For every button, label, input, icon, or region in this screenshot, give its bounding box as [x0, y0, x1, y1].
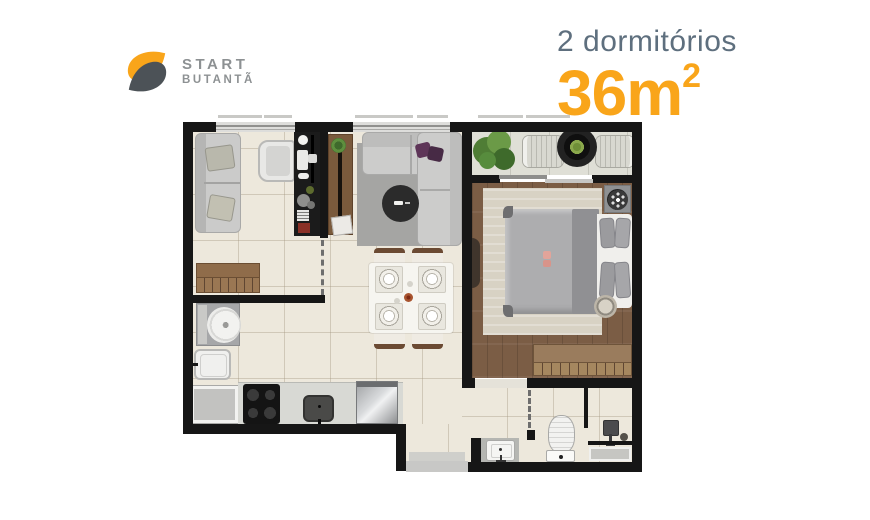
bedside-stool [594, 295, 617, 318]
laundry-cabinet [191, 386, 238, 423]
wall-right [632, 132, 642, 472]
sill-4 [417, 115, 448, 118]
double-bed [505, 209, 599, 314]
washing-machine [196, 303, 240, 346]
wall-living-bedroom [462, 132, 472, 388]
wall-bath-stub [471, 438, 481, 462]
table-glass-2 [394, 298, 400, 304]
bedroom-dresser-rack [533, 344, 632, 376]
wall-top-2 [295, 122, 353, 132]
wall-kitchen-bottom [183, 424, 403, 434]
wall-bottom-right [468, 462, 642, 472]
wall-top-1 [183, 122, 216, 132]
sill-2 [264, 115, 292, 118]
wall-top-3 [450, 122, 642, 132]
sliding-door-panel-1 [499, 175, 547, 179]
table-centerpiece [404, 293, 413, 302]
wall-balcony-left-seg [472, 175, 500, 183]
table-glass-1 [407, 281, 413, 287]
bedroom-side-table [604, 185, 631, 213]
office-sofa [195, 133, 241, 233]
kitchen-sink [303, 395, 334, 422]
window-office [216, 122, 295, 132]
bathroom-vanity [481, 438, 519, 462]
laundry-tub [194, 349, 231, 380]
place-setting-1 [375, 266, 403, 293]
office-lounge-chair [258, 140, 295, 182]
floor-plan [0, 0, 870, 520]
refrigerator [356, 381, 398, 424]
wall-entry-jamb [396, 424, 406, 471]
window-living [353, 122, 450, 132]
place-setting-3 [375, 303, 403, 330]
stove-cooktop [243, 384, 280, 424]
bedroom-door-leaf [472, 238, 480, 288]
office-wardrobe-rack [196, 263, 260, 293]
bedroom-door-threshold [475, 379, 527, 388]
shower-curb [588, 441, 632, 445]
wall-bath-door-stub [527, 430, 535, 440]
balcony-chair-right [596, 136, 634, 167]
wall-left [183, 122, 193, 434]
toilet [546, 415, 575, 462]
shower-mat [589, 447, 631, 461]
shower-partition [584, 386, 588, 428]
wall-office-laundry [183, 295, 325, 303]
tv-console-wood [328, 134, 353, 235]
wall-balcony-right-seg [592, 175, 632, 183]
sill-1 [218, 115, 262, 118]
sofa-pillow-purple-2 [427, 146, 445, 163]
sliding-door-panel-2 [545, 179, 593, 183]
bath-door-dashed [528, 390, 531, 428]
entry-door [406, 461, 468, 472]
office-tv-desk [294, 130, 320, 236]
office-partition-dashed [321, 240, 324, 295]
balcony-plant [473, 130, 521, 174]
balcony-round-table [557, 127, 597, 167]
shower-head [603, 420, 619, 436]
place-setting-4 [418, 303, 446, 330]
wall-office-right [320, 132, 328, 238]
sill-5 [478, 115, 523, 118]
coffee-table [382, 185, 419, 222]
wall-bedroom-bottom-cap [462, 378, 475, 388]
sill-6 [526, 115, 570, 118]
place-setting-2 [418, 266, 446, 293]
sill-3 [355, 115, 413, 118]
entry-door-mat [409, 452, 465, 461]
wall-bedroom-bottom [527, 378, 632, 388]
bed-headboard [597, 214, 632, 308]
shower-drain [620, 433, 628, 441]
